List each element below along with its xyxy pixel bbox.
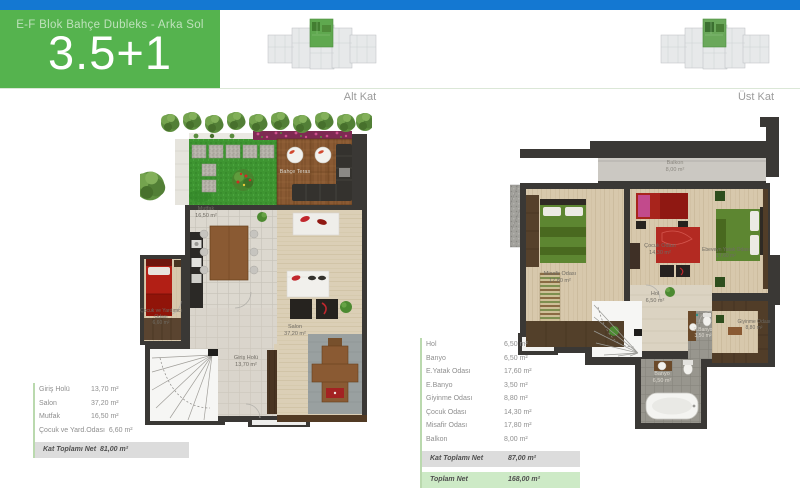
room-label-banyo: Banyo 6,50 m² (646, 371, 678, 384)
table-total-row: Kat Toplamı Net 87,00 m² (422, 451, 580, 467)
room-label-mutfak: Mutfak 16,50 m² (186, 206, 226, 219)
table-row: Balkon 8,00 m² (426, 433, 580, 447)
floor-label-ust-kat: Üst Kat (726, 91, 786, 103)
key-plan-alt-kat (265, 13, 377, 79)
table-grand-total-row: Toplam Net 168,00 m² (422, 472, 580, 488)
room-label-hol: Hol 6,50 m² (640, 291, 670, 304)
brochure-page: E-F Blok Bahçe Dubleks - Arka Sol 3.5+1 (0, 0, 800, 501)
table-row: E.Banyo 3,50 m² (426, 379, 580, 393)
room-label-misafir: Misafir Odası 17,80 m² (536, 271, 584, 284)
room-label-giris-holu: Giriş Holü 13,70 m² (226, 355, 266, 368)
table-row: Banyo 6,50 m² (426, 352, 580, 366)
top-accent-bar (0, 0, 800, 10)
key-plan-ust-kat (658, 13, 770, 79)
room-label-cocuk-odasi: Çocuk Odası 14,30 m² (636, 243, 684, 256)
floorplan-alt-kat-graphic (140, 106, 372, 428)
table-row: Çocuk ve Yard.Odası 6,60 m² (39, 424, 189, 438)
table-row: Çocuk Odası 14,30 m² (426, 406, 580, 420)
area-table-alt-kat: Giriş Holü 13,70 m² Salon 37,20 m² Mutfa… (33, 383, 189, 458)
room-label-giyinme: Giyinme Odası 8,80 m² (734, 319, 774, 331)
floorplan-alt-kat: Bahçe Teras Mutfak 16,50 m² Salon 37,20 … (140, 106, 372, 428)
table-total-row: Kat Toplamı Net 81,00 m² (35, 442, 189, 458)
room-label-balkon: Balkon 8,00 m² (650, 160, 700, 173)
header-divider (0, 88, 800, 89)
room-label-bahce-teras: Bahçe Teras (273, 169, 317, 176)
area-table-ust-kat: Hol 6,50 m² Banyo 6,50 m² E.Yatak Odası … (420, 338, 580, 488)
table-row: E.Yatak Odası 17,60 m² (426, 365, 580, 379)
unit-type: 3.5+1 (48, 31, 172, 76)
table-row: Mutfak 16,50 m² (39, 410, 189, 424)
table-row: Giriş Holü 13,70 m² (39, 383, 189, 397)
table-row: Giyinme Odası 8,80 m² (426, 392, 580, 406)
room-label-e-banyo: E.Banyo 3,50 m² (686, 327, 720, 339)
room-label-ebeveyn: Ebeveyn Yatak Odası 17,60 m² (702, 247, 750, 259)
header-banner: E-F Blok Bahçe Dubleks - Arka Sol 3.5+1 (0, 10, 220, 88)
table-row: Salon 37,20 m² (39, 397, 189, 411)
floor-label-alt-kat: Alt Kat (330, 91, 390, 103)
table-row: Hol 6,50 m² (426, 338, 580, 352)
table-row: Misafir Odası 17,80 m² (426, 419, 580, 433)
room-label-cocuk-yardimci: Çocuk ve Yardımcı Odası 6,60 m² (140, 308, 182, 326)
room-label-salon: Salon 37,20 m² (278, 324, 312, 337)
